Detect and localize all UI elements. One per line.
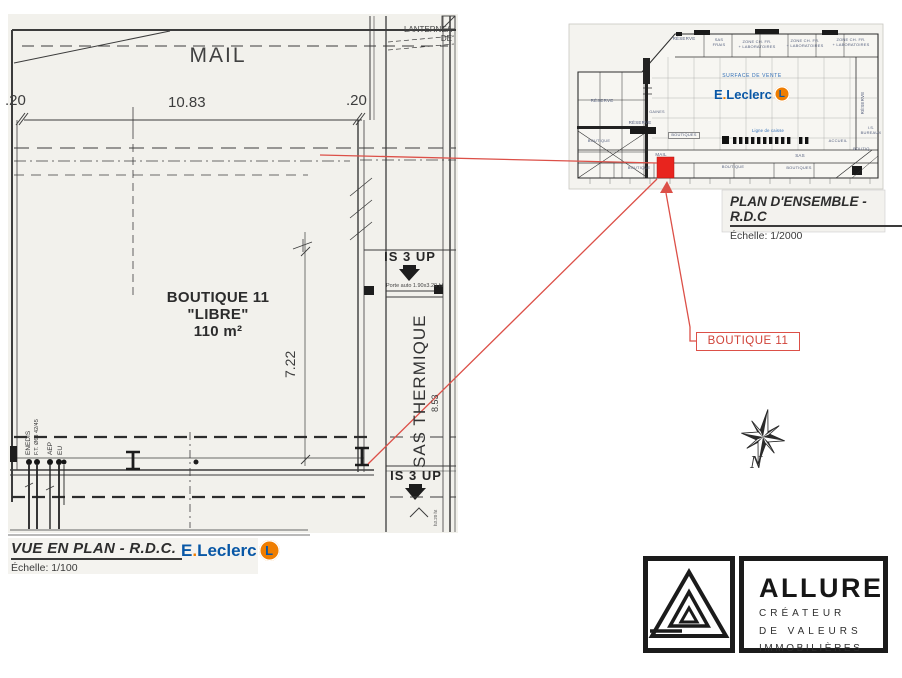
utility-eu: EU xyxy=(57,401,64,455)
boutique-label-block: BOUTIQUE 11 "LIBRE" 110 m² xyxy=(138,289,298,340)
ov-is-bureaux: I.S. BUREAUX xyxy=(860,126,882,136)
main-plan-scale: Échelle: 1/100 xyxy=(11,562,182,574)
utility-ft: F.T. Ø63 42/45 xyxy=(34,401,40,455)
north-label: N xyxy=(750,452,762,473)
allure-tagline-3: IMMOBILIÈRES xyxy=(759,642,883,656)
ov-boutiques-b3: BOUTIQUES xyxy=(784,166,814,171)
overview-title: PLAN D'ENSEMBLE - R.D.C xyxy=(730,194,902,227)
ov-zone3: ZONE CH. FR. + LABORATOIRES xyxy=(830,38,872,48)
ov-boutique-b1: BOUTIQUE xyxy=(626,166,652,171)
lanterneau-label: LANTERNEA DE xyxy=(390,25,452,43)
ov-reserve-right: RÉSERVE xyxy=(860,86,865,120)
boutique-area: 110 m² xyxy=(138,323,298,340)
ov-gaines: GAINES xyxy=(648,110,666,115)
ov-reserve-left: RÉSERVE xyxy=(588,98,616,103)
ov-sas-frais: SAS FRAIS xyxy=(710,38,728,48)
red-line-to-tag xyxy=(666,193,696,341)
dim-sas: 8.53 xyxy=(430,374,440,412)
allure-tagline-1: CRÉATEUR xyxy=(759,607,883,621)
ov-boutiques-mid: BOUTIQUES xyxy=(668,132,700,139)
leclerc-ov-text: E.Leclerc xyxy=(714,87,772,102)
ov-boutiq-right: BOUTIQ. xyxy=(850,147,874,152)
overview-title-block: PLAN D'ENSEMBLE - R.D.C Échelle: 1/2000 xyxy=(730,194,902,242)
ov-sas: SAS xyxy=(792,153,808,158)
door-height-note: h3.20 ht xyxy=(433,496,438,526)
dim-depth: 7.22 xyxy=(282,336,298,378)
overview-scale: Échelle: 1/2000 xyxy=(730,230,902,242)
allure-name: ALLURE xyxy=(759,573,883,603)
main-plan-title-block: VUE EN PLAN - R.D.C. Échelle: 1/100 xyxy=(11,540,182,574)
ov-ligne-caisse: Ligne de caisse xyxy=(748,128,788,133)
leclerc-logo: E.Leclerc L xyxy=(181,540,280,561)
dim-right: .20 xyxy=(346,92,367,109)
ov-surface-vente: SURFACE DE VENTE xyxy=(722,73,782,79)
ov-mail: MAIL xyxy=(650,152,672,157)
leclerc-e: E xyxy=(181,541,192,560)
ov-reserve-top: RÉSERVE xyxy=(670,36,698,41)
allure-mark-box xyxy=(643,556,735,653)
ov-zone1: ZONE CH. FR. + LABORATOIRES xyxy=(736,40,778,50)
leclerc-ov-e: E xyxy=(714,87,723,102)
ov-reserve-mid: RÉSERVE xyxy=(626,120,654,125)
ov-boutique-left: BOUTIQUE xyxy=(586,139,612,144)
allure-text-box: ALLURE CRÉATEUR DE VALEURS IMMOBILIÈRES xyxy=(739,556,888,653)
leclerc-ov-rest: Leclerc xyxy=(726,87,772,102)
compass-rose xyxy=(736,406,789,469)
utility-enedis: ENEDIS xyxy=(25,401,32,455)
is3up-bottom-label: IS 3 UP xyxy=(390,468,442,483)
leclerc-text: E.Leclerc xyxy=(181,541,257,561)
allure-triangle-mark xyxy=(648,562,730,647)
porte-auto-note: Porte auto 1.90x3.20 ht xyxy=(386,283,444,289)
dim-left: .20 xyxy=(5,92,26,109)
leclerc-ov-badge: L xyxy=(774,86,790,102)
is3up-top-label: IS 3 UP xyxy=(384,249,436,264)
ov-boutique-b2: BOUTIQUE xyxy=(720,165,746,170)
leclerc-rest: Leclerc xyxy=(197,541,257,560)
boutique11-highlight-square xyxy=(657,157,674,178)
utility-aep: AEP xyxy=(47,401,54,455)
boutique11-tag: BOUTIQUE 11 xyxy=(696,332,800,351)
leclerc-badge: L xyxy=(259,540,280,561)
boutique-status: "LIBRE" xyxy=(138,306,298,323)
leclerc-logo-overview: E.Leclerc L xyxy=(714,86,790,102)
dim-width: 10.83 xyxy=(168,94,206,111)
allure-tagline-2: DE VALEURS xyxy=(759,625,883,639)
main-plan-title: VUE EN PLAN - R.D.C. xyxy=(11,540,182,560)
boutique-title: BOUTIQUE 11 xyxy=(138,289,298,306)
ov-accueil: ACCUEIL xyxy=(827,139,849,144)
sas-thermique-label: SAS THERMIQUE xyxy=(410,306,430,468)
plan-page: MAIL LANTERNEA DE .20 10.83 .20 BOUTIQUE… xyxy=(0,0,902,678)
mail-label: MAIL xyxy=(168,44,268,68)
ov-zone2: ZONE CH. FR. + LABORATOIRES xyxy=(784,39,826,49)
